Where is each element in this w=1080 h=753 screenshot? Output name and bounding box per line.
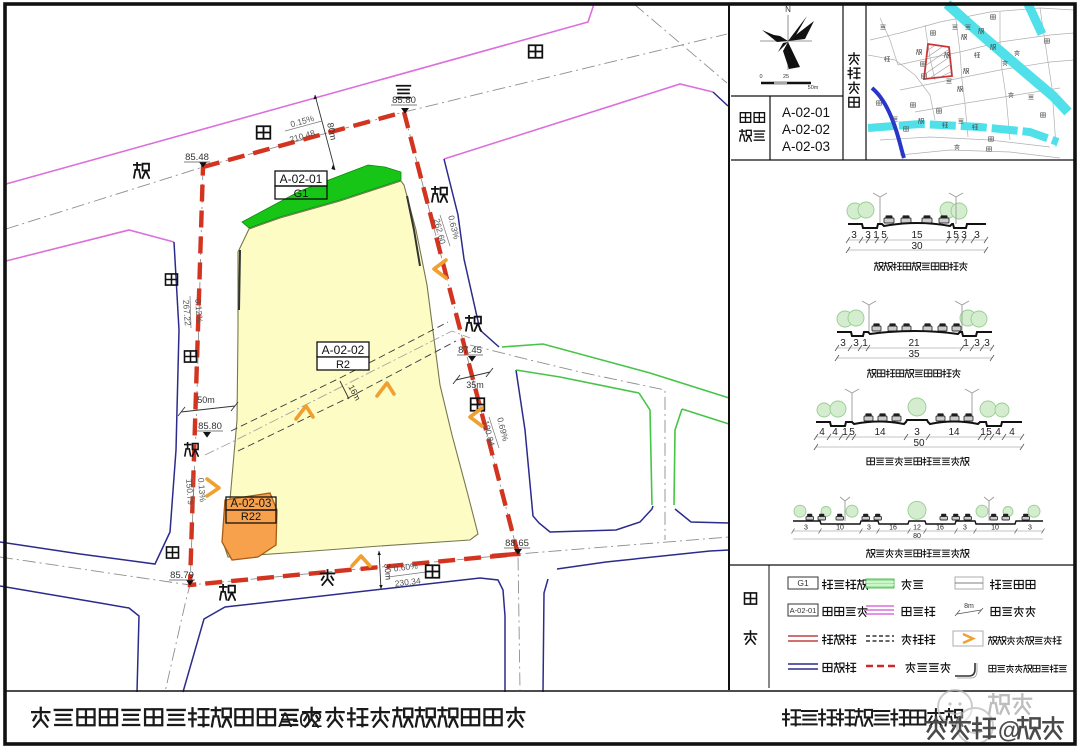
- svg-text:150.79: 150.79: [184, 478, 196, 505]
- svg-text:50m: 50m: [197, 395, 215, 405]
- svg-text:A-02-01: A-02-01: [782, 105, 830, 120]
- svg-text:50: 50: [913, 438, 925, 449]
- svg-text:3: 3: [1028, 525, 1032, 532]
- svg-text:10: 10: [836, 525, 844, 532]
- svg-text:12: 12: [913, 525, 921, 532]
- svg-text:0: 0: [759, 74, 762, 80]
- svg-text:3: 3: [963, 525, 967, 532]
- svg-text:0.12%: 0.12%: [193, 298, 205, 323]
- svg-text:N: N: [785, 5, 791, 14]
- svg-text:3: 3: [867, 525, 871, 532]
- svg-text:3: 3: [914, 427, 920, 438]
- svg-text:1: 1: [946, 230, 952, 241]
- svg-text:4: 4: [995, 427, 1001, 438]
- svg-text:30m: 30m: [382, 563, 393, 580]
- svg-text:85.80: 85.80: [392, 95, 416, 106]
- svg-text:3: 3: [853, 338, 859, 349]
- svg-text:8m: 8m: [964, 603, 974, 610]
- svg-text:50m: 50m: [808, 85, 819, 91]
- svg-text:3: 3: [851, 230, 857, 241]
- svg-text:10: 10: [991, 525, 999, 532]
- svg-text:30: 30: [911, 241, 923, 252]
- svg-text:G1: G1: [294, 188, 309, 200]
- svg-text:85.79: 85.79: [170, 570, 194, 581]
- svg-text:3: 3: [961, 230, 967, 241]
- svg-text:3: 3: [865, 230, 871, 241]
- svg-text:5: 5: [953, 230, 959, 241]
- svg-text:A-02-03: A-02-03: [231, 498, 272, 510]
- svg-text:5: 5: [986, 427, 992, 438]
- svg-text:15: 15: [911, 230, 923, 241]
- svg-text:21: 21: [908, 338, 920, 349]
- svg-text:5: 5: [881, 230, 887, 241]
- svg-text:A-02-01: A-02-01: [790, 606, 817, 615]
- svg-text:88.65: 88.65: [505, 538, 529, 549]
- svg-text:85.80: 85.80: [198, 421, 222, 432]
- svg-text:4: 4: [819, 427, 825, 438]
- svg-text:A-02-03: A-02-03: [782, 139, 830, 154]
- svg-text:G1: G1: [797, 578, 809, 588]
- svg-text:16: 16: [889, 525, 897, 532]
- svg-text:4: 4: [1009, 427, 1015, 438]
- svg-text:14: 14: [874, 427, 886, 438]
- svg-text:A-02-02: A-02-02: [782, 122, 830, 137]
- svg-text:35m: 35m: [466, 380, 484, 390]
- svg-text:87.45: 87.45: [458, 345, 482, 356]
- svg-text:80: 80: [913, 533, 921, 540]
- svg-text:267.22: 267.22: [181, 299, 193, 326]
- svg-text:4: 4: [832, 427, 838, 438]
- svg-text:R22: R22: [241, 511, 261, 523]
- svg-text:16: 16: [936, 525, 944, 532]
- svg-text:35: 35: [908, 349, 920, 360]
- svg-text:3: 3: [984, 338, 990, 349]
- svg-text:1: 1: [842, 427, 848, 438]
- svg-text:3: 3: [974, 338, 980, 349]
- svg-text:3: 3: [840, 338, 846, 349]
- svg-text:0.13%: 0.13%: [196, 477, 208, 502]
- svg-text:R2: R2: [336, 359, 350, 371]
- svg-text:14: 14: [948, 427, 960, 438]
- svg-text:1: 1: [862, 338, 868, 349]
- svg-text:A-02-02: A-02-02: [322, 343, 365, 357]
- svg-text:1: 1: [963, 338, 969, 349]
- svg-text:A-02-01: A-02-01: [280, 172, 323, 186]
- svg-text:A-02: A-02: [278, 709, 322, 732]
- svg-text:3: 3: [804, 525, 808, 532]
- svg-text:5: 5: [849, 427, 855, 438]
- svg-text:1: 1: [873, 230, 879, 241]
- svg-text:85.48: 85.48: [185, 152, 209, 163]
- svg-text:3: 3: [974, 230, 980, 241]
- svg-text:25: 25: [783, 74, 789, 80]
